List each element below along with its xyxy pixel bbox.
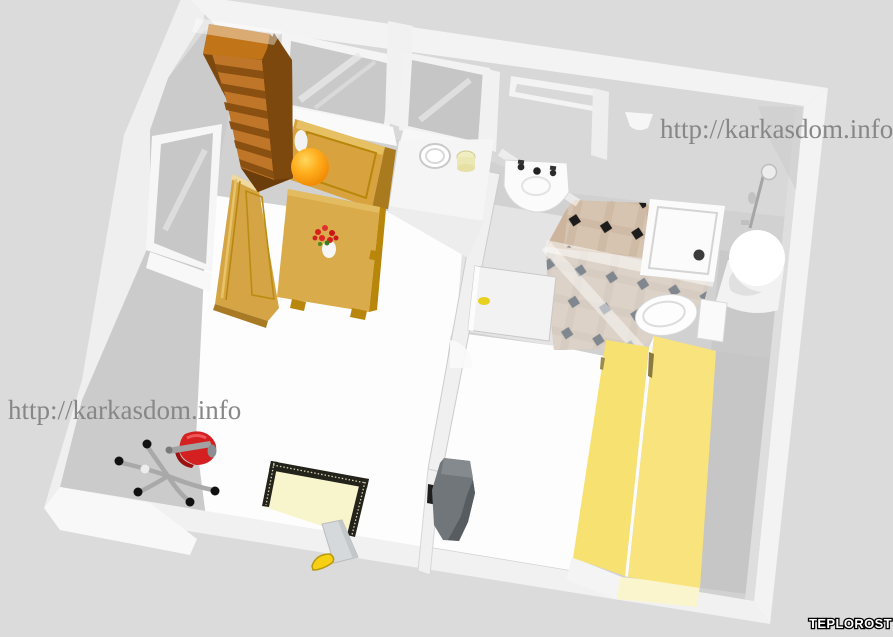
svg-text:http://karkasdom.info: http://karkasdom.info	[8, 395, 241, 425]
svg-text:http://karkasdom.info: http://karkasdom.info	[660, 114, 893, 144]
svg-text:TEPLOROST: TEPLOROST	[809, 616, 892, 631]
